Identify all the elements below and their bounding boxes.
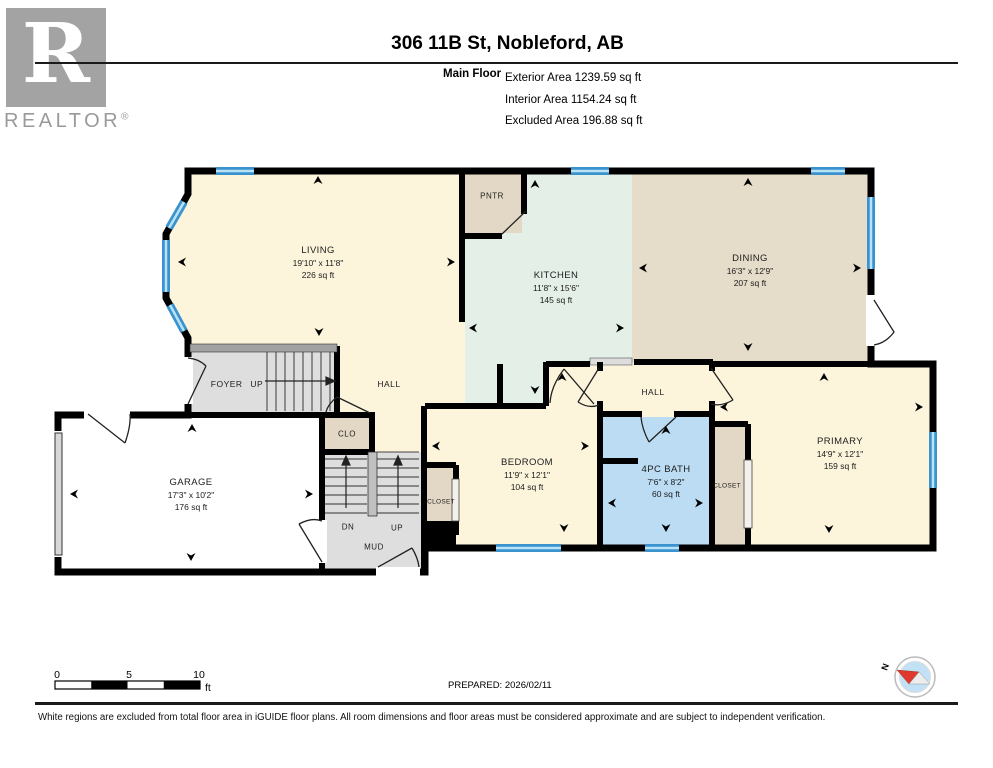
kitchen-name: KITCHEN — [533, 270, 579, 282]
label-pantry: PNTR — [480, 192, 504, 201]
room-label-garage: GARAGE 17'3" x 10'2" 176 sq ft — [168, 477, 215, 513]
label-foyer-up: FOYER UP — [211, 379, 263, 389]
bedroom-area: 104 sq ft — [501, 481, 553, 493]
stair-rail — [190, 344, 337, 352]
label-clo: CLO — [338, 430, 356, 439]
realtor-logo: R — [6, 8, 106, 107]
page-title: 306 11B St, Nobleford, AB — [25, 33, 990, 55]
primary-dims: 14'9" x 12'1" — [817, 448, 864, 460]
pantry-fill — [465, 174, 522, 233]
step-fill — [590, 358, 632, 365]
label-mud: MUD — [364, 543, 384, 552]
scale-tick-5: 5 — [126, 669, 132, 681]
primary-area: 159 sq ft — [817, 460, 864, 472]
header-divider — [35, 62, 958, 64]
stair-divider — [368, 452, 377, 516]
kitchen-area: 145 sq ft — [533, 294, 579, 306]
realtor-logo-text: REALTOR® — [4, 110, 129, 133]
living-dims: 19'10" x 11'8" — [293, 257, 344, 269]
label-closet-primary: CLOSET — [713, 483, 741, 490]
living-name: LIVING — [293, 245, 344, 257]
prepared-date: PREPARED: 2026/02/11 — [448, 680, 552, 691]
garage-dims: 17'3" x 10'2" — [168, 489, 215, 501]
floorplan-drawing: 0 5 10 ft N — [0, 0, 993, 768]
scale-unit: ft — [205, 682, 211, 694]
bedroom-dims: 11'9" x 12'1" — [501, 469, 553, 481]
primary-name: PRIMARY — [817, 436, 864, 448]
bath-name: 4PC BATH — [642, 464, 691, 476]
bedroom-name: BEDROOM — [501, 457, 553, 469]
scale-tick-10: 10 — [193, 669, 205, 681]
footer-divider — [35, 702, 958, 705]
bath-dims: 7'6" x 8'2" — [642, 476, 691, 488]
dining-name: DINING — [727, 253, 774, 265]
dining-dims: 16'3" x 12'9" — [727, 265, 774, 277]
kitchen-dims: 11'8" x 15'6" — [533, 282, 579, 294]
label-closet-bedroom: CLOSET — [427, 499, 455, 506]
garage-name: GARAGE — [168, 477, 215, 489]
bath-area: 60 sq ft — [642, 488, 691, 500]
compass-north-label: N — [879, 662, 891, 672]
realtor-wordmark: REALTOR — [4, 110, 121, 132]
scale-tick-0: 0 — [54, 669, 60, 681]
disclaimer-text: White regions are excluded from total fl… — [38, 712, 825, 723]
living-area: 226 sq ft — [293, 269, 344, 281]
room-label-dining: DINING 16'3" x 12'9" 207 sq ft — [727, 253, 774, 289]
registered-mark: ® — [121, 111, 128, 122]
label-stairs-dn: DN — [342, 523, 355, 532]
label-hall-back: HALL — [641, 387, 664, 397]
label-stairs-up: UP — [391, 524, 403, 533]
kitchen-fill-ext — [465, 362, 543, 404]
room-label-primary: PRIMARY 14'9" x 12'1" 159 sq ft — [817, 436, 864, 472]
room-label-kitchen: KITCHEN 11'8" x 15'6" 145 sq ft — [533, 270, 579, 306]
room-label-living: LIVING 19'10" x 11'8" 226 sq ft — [293, 245, 344, 281]
room-label-bedroom: BEDROOM 11'9" x 12'1" 104 sq ft — [501, 457, 553, 493]
room-label-bath: 4PC BATH 7'6" x 8'2" 60 sq ft — [642, 464, 691, 500]
dining-area: 207 sq ft — [727, 277, 774, 289]
compass: N — [879, 657, 935, 697]
closet-primary-door — [744, 460, 752, 528]
label-hall-main: HALL — [377, 379, 400, 389]
scale-bar: 0 5 10 ft — [54, 669, 211, 694]
garage-door — [55, 433, 62, 555]
closet-bedroom-wall-mass — [425, 521, 456, 545]
garage-area: 176 sq ft — [168, 501, 215, 513]
